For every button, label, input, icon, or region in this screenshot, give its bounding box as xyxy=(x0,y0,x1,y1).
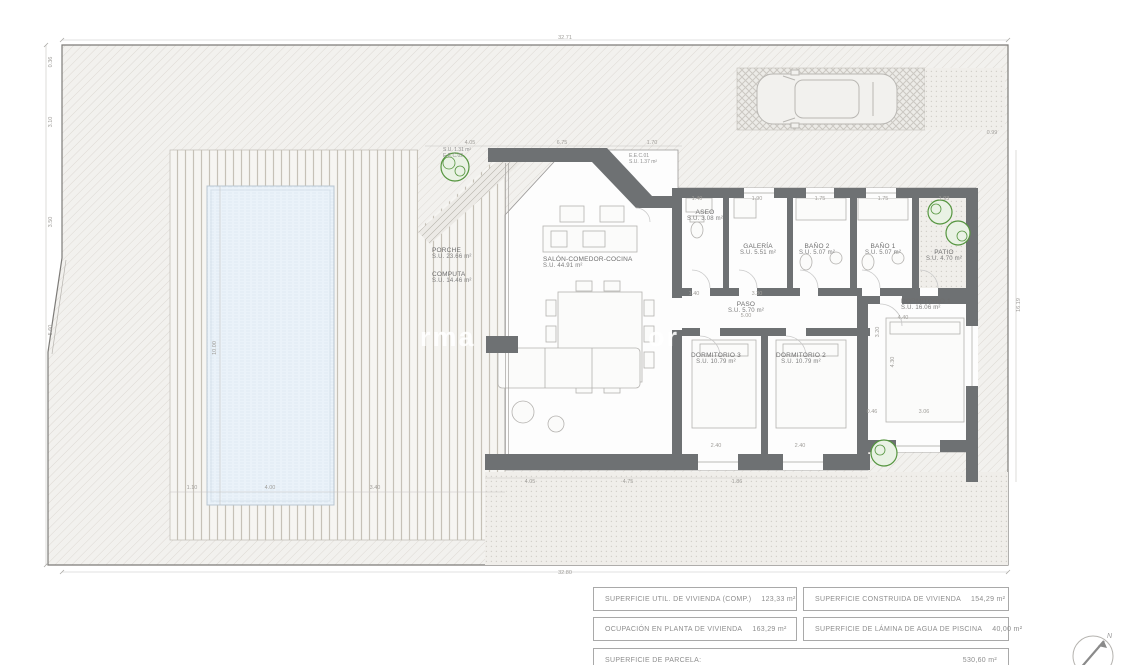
summary-value: 154,29 m² xyxy=(961,596,1005,603)
tree-icon xyxy=(928,200,952,224)
summary-value: 40,00 m² xyxy=(982,626,1022,633)
summary-label: SUPERFICIE CONSTRUIDA DE VIVIENDA xyxy=(815,596,961,603)
summary-row: SUPERFICIE DE LÁMINA DE AGUA DE PISCINA … xyxy=(803,617,1009,641)
summary-label: SUPERFICIE DE LÁMINA DE AGUA DE PISCINA xyxy=(815,626,982,633)
tree-icon xyxy=(871,440,897,466)
svg-text:N: N xyxy=(1107,633,1113,640)
summary-value: 123,33 m² xyxy=(751,596,795,603)
tree-icon xyxy=(441,153,469,181)
summary-value: 530,60 m² xyxy=(953,657,997,664)
summary-label: SUPERFICIE DE PARCELA: xyxy=(605,657,701,664)
floor-plan-drawing: N xyxy=(0,0,1130,665)
tree-icon xyxy=(946,221,970,245)
coffee-table xyxy=(512,401,534,423)
summary-row: SUPERFICIE DE PARCELA: 530,60 m² xyxy=(593,648,1009,665)
summary-label: SUPERFICIE UTIL. DE VIVIENDA (COMP.) xyxy=(605,596,751,603)
walkway xyxy=(485,472,1008,565)
floor-plan-sheet: N PORCHES.U. 23.66 m²COMPUTAS.U. 14.46 m… xyxy=(0,0,1130,665)
sofa xyxy=(498,348,640,388)
summary-value: 163,29 m² xyxy=(742,626,786,633)
summary-row: SUPERFICIE CONSTRUIDA DE VIVIENDA 154,29… xyxy=(803,587,1009,611)
summary-row: OCUPACIÓN EN PLANTA DE VIVIENDA 163,29 m… xyxy=(593,617,797,641)
summary-row: SUPERFICIE UTIL. DE VIVIENDA (COMP.) 123… xyxy=(593,587,797,611)
pool xyxy=(207,186,334,505)
porch-column xyxy=(486,336,518,353)
parking-area xyxy=(737,68,1005,130)
car-icon xyxy=(757,70,897,128)
compass-icon: N xyxy=(1073,633,1113,665)
summary-label: OCUPACIÓN EN PLANTA DE VIVIENDA xyxy=(605,626,742,633)
